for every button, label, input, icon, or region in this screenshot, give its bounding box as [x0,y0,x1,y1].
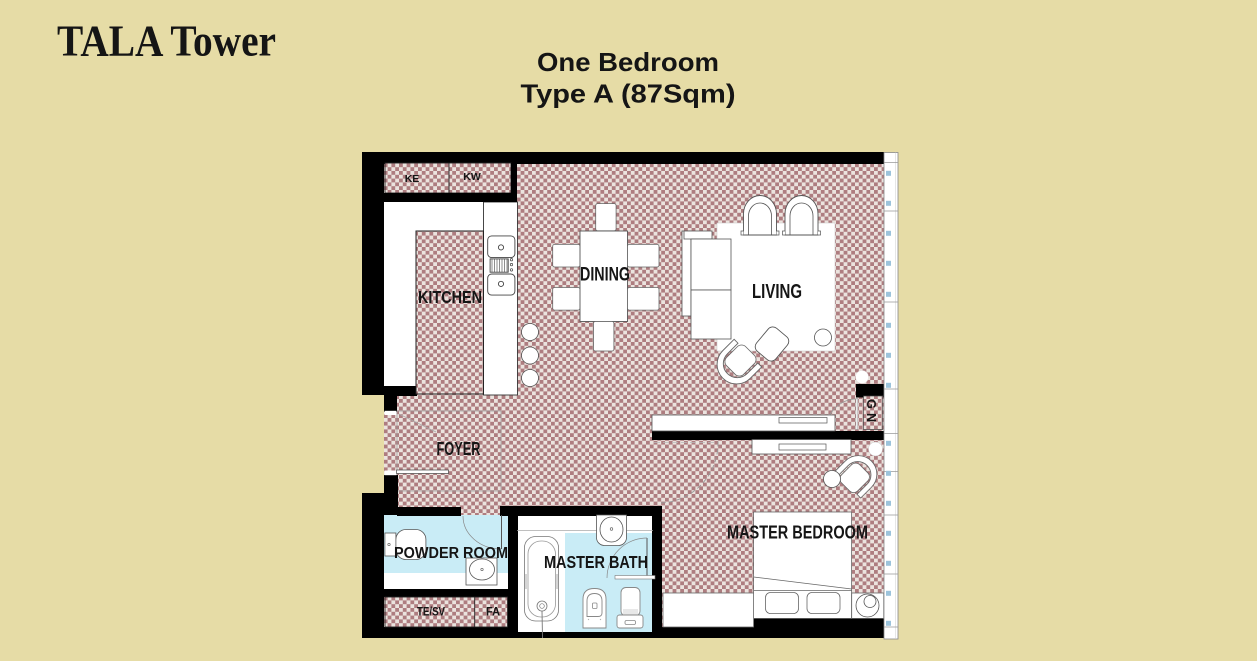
svg-text:DINING: DINING [580,264,630,286]
svg-text:KW: KW [463,171,481,183]
svg-text:FA: FA [486,605,500,619]
svg-text:LIVING: LIVING [752,281,802,303]
svg-text:TE/SV: TE/SV [417,605,445,619]
svg-text:MASTER BATH: MASTER BATH [544,552,648,572]
svg-text:N: N [864,413,878,422]
svg-text:TALA Tower: TALA Tower [57,17,276,66]
svg-text:G: G [864,399,878,409]
svg-text:Type A (87Sqm): Type A (87Sqm) [521,79,736,109]
svg-text:MASTER BEDROOM: MASTER BEDROOM [727,523,868,543]
svg-text:One Bedroom: One Bedroom [537,47,719,77]
svg-text:KE: KE [405,173,420,185]
svg-text:POWDER ROOM: POWDER ROOM [394,545,508,562]
svg-text:FOYER: FOYER [437,439,481,459]
svg-text:KITCHEN: KITCHEN [418,287,482,307]
